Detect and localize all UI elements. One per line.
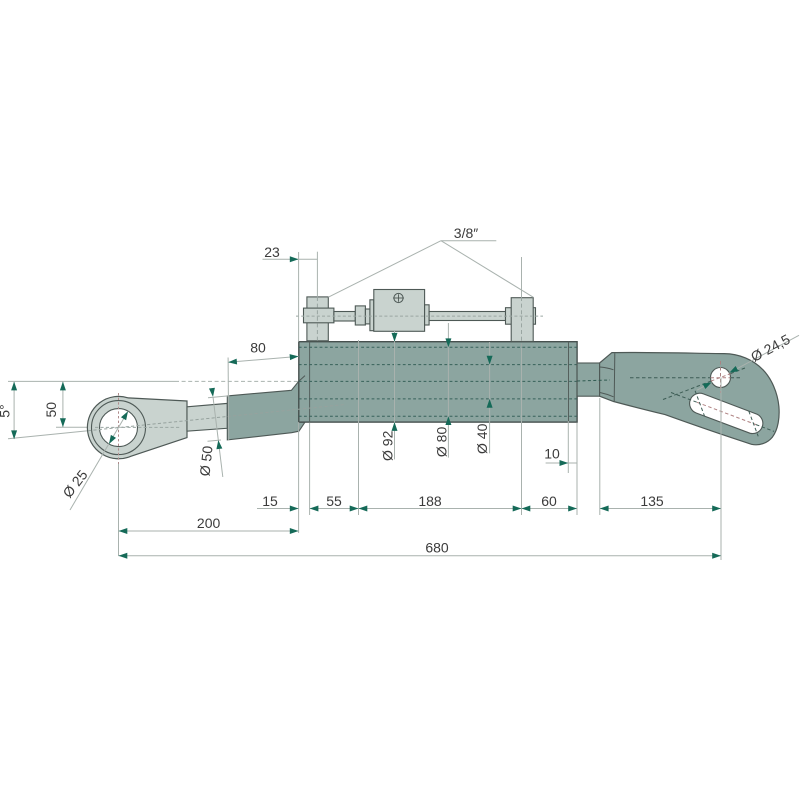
svg-text:Ø 80: Ø 80: [433, 427, 449, 458]
svg-text:10: 10: [544, 446, 560, 462]
svg-text:50: 50: [43, 402, 59, 418]
svg-text:23: 23: [264, 244, 280, 260]
svg-text:5°: 5°: [0, 404, 13, 417]
svg-text:188: 188: [418, 493, 442, 509]
svg-text:135: 135: [640, 493, 664, 509]
svg-text:200: 200: [197, 515, 221, 531]
svg-text:Ø 50: Ø 50: [196, 445, 215, 477]
svg-text:15: 15: [262, 493, 278, 509]
svg-text:60: 60: [541, 493, 557, 509]
svg-text:55: 55: [326, 493, 342, 509]
svg-text:3/8″: 3/8″: [454, 225, 478, 241]
svg-text:80: 80: [250, 339, 266, 355]
svg-text:Ø 92: Ø 92: [380, 430, 396, 461]
svg-text:Ø 40: Ø 40: [474, 423, 490, 454]
svg-text:680: 680: [425, 540, 449, 556]
